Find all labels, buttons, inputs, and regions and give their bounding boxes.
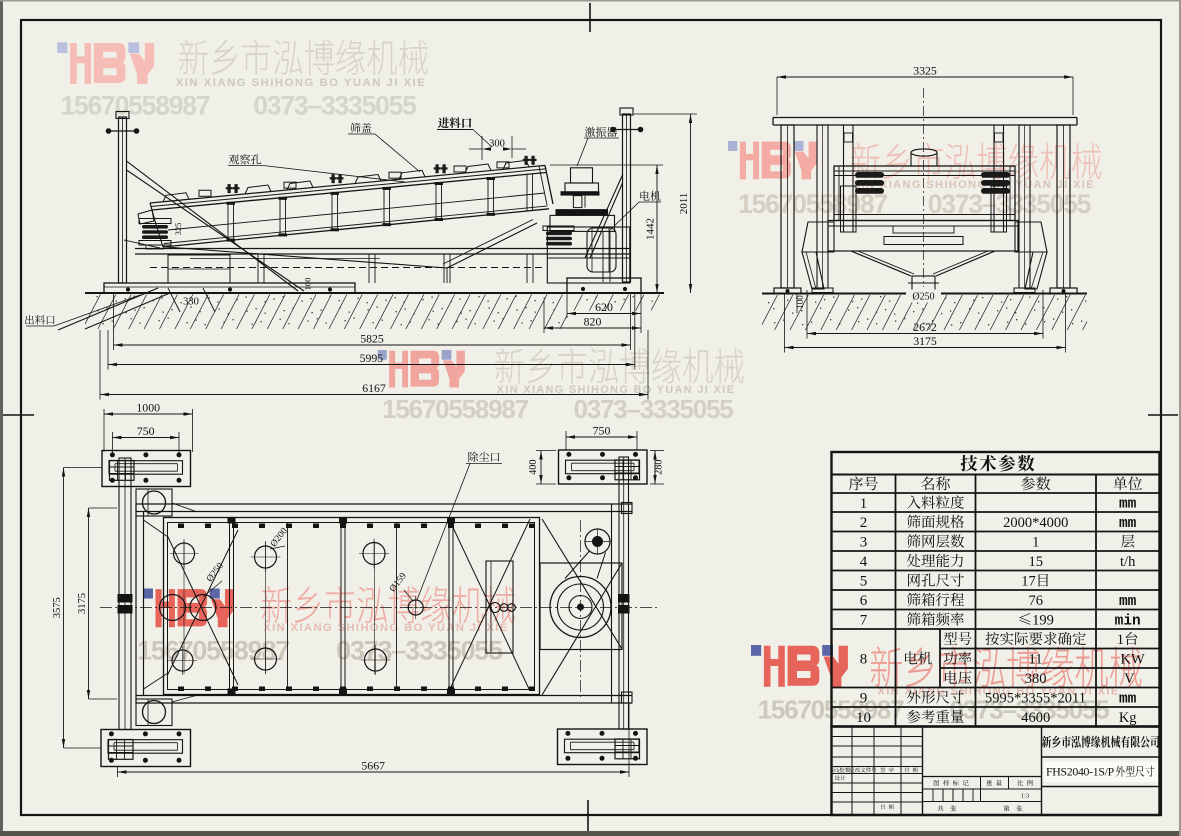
svg-text:4600: 4600 (1021, 710, 1050, 726)
svg-text:380: 380 (1025, 671, 1047, 687)
svg-text:15670558987: 15670558987 (382, 394, 529, 424)
svg-text:100: 100 (303, 278, 313, 291)
svg-text:2: 2 (860, 515, 868, 531)
svg-text:6167: 6167 (362, 381, 386, 395)
svg-text:325: 325 (173, 223, 183, 236)
svg-text:11: 11 (1029, 651, 1043, 667)
svg-text:mm: mm (1119, 516, 1137, 532)
svg-text:0373–3335055: 0373–3335055 (336, 636, 503, 666)
svg-text:KW: KW (1121, 651, 1145, 667)
svg-text:3325: 3325 (913, 64, 937, 78)
svg-text:2000*4000: 2000*4000 (1003, 515, 1068, 531)
svg-text:1:3: 1:3 (1021, 792, 1029, 799)
svg-text:820: 820 (584, 315, 602, 329)
svg-text:XIN XIANG SHIHONG BO YUAN JI X: XIN XIANG SHIHONG BO YUAN JI XIE (176, 77, 427, 89)
svg-text:15670558987: 15670558987 (60, 90, 209, 120)
svg-text:9: 9 (860, 691, 868, 707)
svg-text:199: 199 (1032, 612, 1054, 628)
svg-text:6: 6 (860, 593, 868, 609)
svg-text:1442: 1442 (645, 218, 657, 240)
svg-text:15: 15 (1029, 554, 1044, 570)
svg-text:1: 1 (1032, 534, 1039, 550)
svg-text:100: 100 (795, 295, 805, 309)
svg-text:mm: mm (1119, 691, 1137, 707)
svg-text:0373–3335055: 0373–3335055 (253, 90, 416, 120)
svg-text:400: 400 (528, 460, 539, 475)
svg-text:3: 3 (860, 535, 868, 551)
svg-text:3175: 3175 (913, 334, 937, 348)
svg-text:FHS2040-1S/P: FHS2040-1S/P (1046, 765, 1115, 779)
svg-text:76: 76 (1029, 593, 1044, 609)
svg-text:1000: 1000 (136, 401, 160, 415)
svg-text:750: 750 (137, 424, 155, 438)
svg-text:4: 4 (860, 554, 868, 570)
svg-text:2672: 2672 (913, 320, 937, 334)
svg-text:3575: 3575 (52, 597, 63, 618)
svg-text:17: 17 (1021, 573, 1035, 589)
svg-text:15670558987: 15670558987 (137, 636, 289, 666)
svg-text:Ø250: Ø250 (912, 292, 934, 303)
svg-text:1: 1 (1117, 632, 1124, 648)
svg-text:mm: mm (1119, 594, 1137, 610)
svg-text:t/h: t/h (1120, 554, 1136, 570)
svg-text:3175: 3175 (77, 593, 88, 614)
svg-text:min: min (1115, 613, 1141, 629)
svg-text:5995: 5995 (360, 351, 384, 365)
svg-text:5667: 5667 (361, 759, 385, 773)
svg-text:0373–3335055: 0373–3335055 (573, 394, 733, 424)
svg-text:5: 5 (860, 574, 868, 590)
svg-text:5995*3355*2011: 5995*3355*2011 (985, 690, 1086, 706)
svg-text:1: 1 (860, 496, 868, 512)
svg-text:XIN XIANG SHIHONG BO YUAN JI X: XIN XIANG SHIHONG BO YUAN JI XIE (263, 622, 508, 634)
svg-text:5825: 5825 (360, 332, 384, 346)
svg-text:280: 280 (654, 460, 665, 475)
svg-text:Kg: Kg (1119, 710, 1137, 726)
svg-text:mm: mm (1119, 497, 1137, 513)
svg-text:300: 300 (489, 139, 505, 150)
svg-text:620: 620 (595, 300, 613, 314)
svg-text:V: V (1124, 671, 1135, 687)
svg-text:8: 8 (860, 652, 868, 668)
svg-text:750: 750 (593, 424, 611, 438)
svg-text:2011: 2011 (678, 193, 690, 215)
svg-text:330: 330 (183, 297, 199, 308)
svg-text:7: 7 (860, 613, 868, 629)
svg-text:10: 10 (856, 710, 871, 726)
